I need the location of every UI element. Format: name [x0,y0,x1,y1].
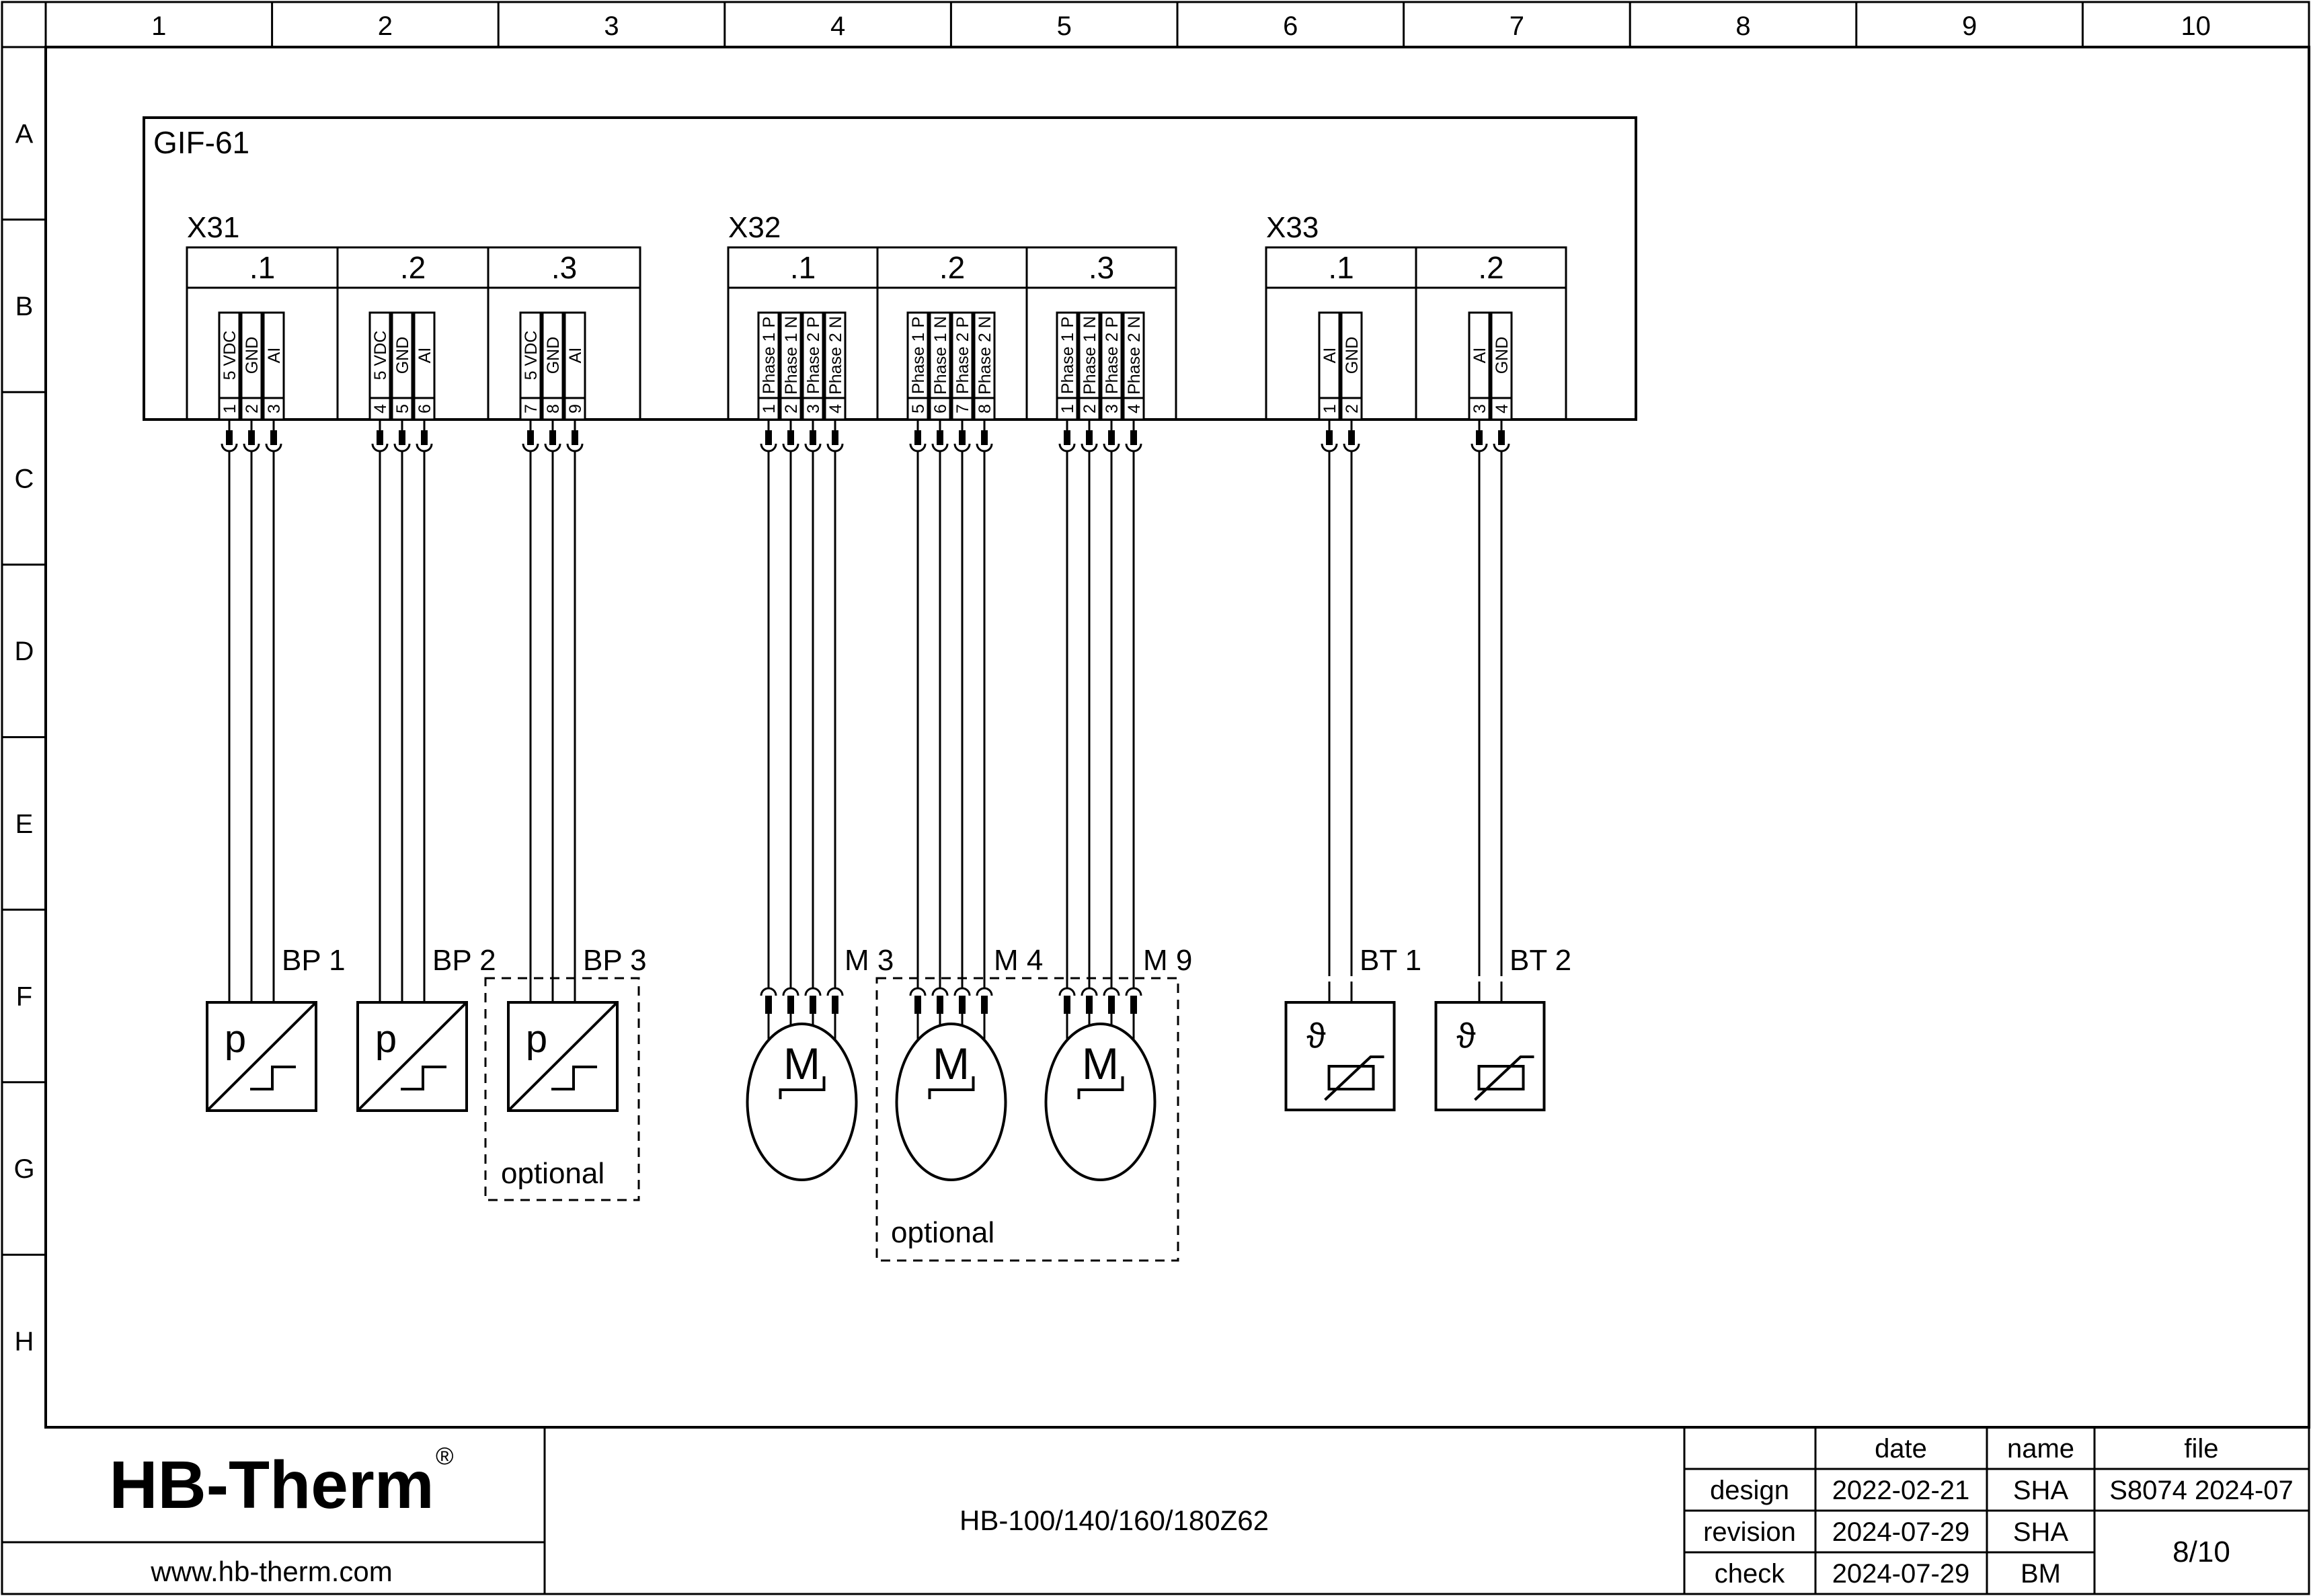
component-label: M 4 [994,944,1043,977]
plug-pin-icon [399,430,405,445]
motor-symbol: M [933,1039,970,1088]
plug-pin-icon [1498,430,1505,445]
company-website: www.hb-therm.com [150,1556,392,1587]
plug-pin-icon [959,430,966,445]
socket-cup-icon [806,988,820,996]
pin-number-label: 1 [1058,404,1077,413]
wiring-diagram: GIF-61 12345678910ABCDEFGHX31.15 VDC1GND… [0,0,2311,1596]
socket-cup-icon [1060,988,1074,996]
plug-pin-icon [1064,430,1070,445]
pin-signal-label: 5 VDC [221,331,239,381]
connector-label: X31 [187,211,239,244]
socket-cup-icon [1126,988,1141,996]
plug-pin-icon [981,430,988,445]
plug-pin-icon [765,430,772,445]
pin-signal-label: Phase 2 P [953,317,972,394]
col-header-file: file [2184,1434,2218,1464]
pin-signal-label: AI [416,348,434,364]
plug-pin-icon [810,430,816,445]
socket-cup-icon [783,988,798,996]
pin-signal-label: Phase 1 N [782,316,801,395]
schematic-page: GIF-61 12345678910ABCDEFGHX31.15 VDC1GND… [0,0,2311,1596]
plug-pin-icon [549,430,556,445]
pin-signal-label: Phase 2 P [804,317,823,394]
pin-number-label: 3 [804,404,823,413]
col-header-date: date [1875,1434,1927,1464]
company-logo: HB-Therm [109,1447,434,1523]
pin-signal-label: Phase 1 P [909,317,928,394]
device-box: GIF-61 [144,118,1636,420]
component-label: M 9 [1143,944,1192,977]
plug-pin-icon [914,430,921,445]
connector-cell-label: .2 [939,250,965,285]
revision-label: revision [1703,1517,1796,1547]
theta-symbol: ϑ [1306,1016,1326,1055]
pin-signal-label: AI [1321,348,1339,364]
pin-signal-label: Phase 1 P [1058,317,1077,394]
plug-pin-icon [248,430,255,445]
grid-column-label: 6 [1283,11,1298,41]
grid-row-label: E [15,809,34,839]
pin-number-label: 3 [265,404,284,413]
plug-pin-icon [1476,430,1483,445]
pin-number-label: 9 [566,404,585,413]
grid-column-label: 5 [1057,11,1072,41]
device-label: GIF-61 [153,125,249,160]
check-date: 2024-07-29 [1832,1559,1970,1589]
component-label: BT 1 [1360,944,1421,977]
plug-pin-icon [572,430,578,445]
generated-schematic: 12345678910ABCDEFGHX31.15 VDC1GND2AI3.25… [2,2,2309,1427]
pin-number-label: 4 [371,404,390,413]
pin-number-label: 4 [826,404,845,413]
col-header-name: name [2007,1434,2074,1464]
pin-signal-label: Phase 2 N [1125,316,1144,395]
pin-number-label: 6 [931,404,950,413]
pin-number-label: 4 [1125,404,1144,413]
plug-pin-icon [832,996,838,1014]
page-number: 8/10 [2172,1535,2230,1568]
grid-row-label: D [15,637,34,666]
socket-cup-icon [1104,988,1119,996]
pin-signal-label: GND [243,337,262,374]
connector-cell-label: .3 [1089,250,1114,285]
motor-symbol: M [1082,1039,1119,1088]
pressure-symbol: p [225,1017,246,1061]
plug-pin-icon [1348,430,1355,445]
plug-pin-icon [981,996,988,1014]
plug-pin-icon [937,996,943,1014]
pin-signal-label: GND [1493,337,1512,374]
pressure-symbol: p [375,1017,397,1061]
plug-pin-icon [527,430,534,445]
component-label: M 3 [845,944,894,977]
pin-number-label: 8 [544,404,563,413]
pin-signal-label: Phase 2 N [826,316,845,395]
connector-label: X33 [1266,211,1319,244]
design-name: SHA [2013,1476,2069,1505]
pin-number-label: 5 [909,404,928,413]
connector-label: X32 [728,211,781,244]
plug-pin-icon [914,996,921,1014]
plug-pin-icon [1064,996,1070,1014]
pin-signal-label: 5 VDC [522,331,541,381]
grid-row-label: C [15,465,34,494]
connector-cell-label: .3 [551,250,577,285]
grid-column-label: 10 [2181,11,2211,41]
pin-number-label: 4 [1493,404,1512,413]
pin-number-label: 7 [522,404,541,413]
motor-symbol: M [783,1039,820,1088]
plug-pin-icon [765,996,772,1014]
pin-number-label: 8 [976,404,994,413]
check-name: BM [2021,1559,2061,1589]
plug-pin-icon [787,430,794,445]
pin-signal-label: 5 VDC [371,331,390,381]
title-block: HB-Therm ® www.hb-therm.com HB-100/140/1… [2,1427,2309,1594]
grid-column-label: 2 [378,11,393,41]
pin-signal-label: AI [1471,348,1489,364]
pin-signal-label: Phase 1 N [931,316,950,395]
plug-pin-icon [421,430,428,445]
pin-signal-label: AI [265,348,284,364]
pin-number-label: 2 [1081,404,1099,413]
pin-number-label: 1 [1321,404,1339,413]
pin-signal-label: Phase 1 N [1081,316,1099,395]
revision-date: 2024-07-29 [1832,1517,1970,1547]
pin-signal-label: GND [1343,337,1362,374]
component-label: BP 1 [282,944,346,977]
design-date: 2022-02-21 [1832,1476,1970,1505]
plug-pin-icon [377,430,383,445]
pin-signal-label: AI [566,348,585,364]
grid-column-label: 3 [604,11,619,41]
pin-number-label: 3 [1103,404,1122,413]
registered-mark: ® [436,1442,454,1470]
plug-pin-icon [1130,996,1137,1014]
plug-pin-icon [1086,996,1093,1014]
optional-label: optional [501,1157,604,1190]
pin-number-label: 1 [760,404,779,413]
pin-signal-label: GND [544,337,563,374]
socket-cup-icon [933,988,947,996]
plug-pin-icon [1086,430,1093,445]
design-label: design [1710,1476,1789,1505]
grid-row-label: G [13,1154,34,1184]
plug-pin-icon [1108,430,1115,445]
pin-number-label: 3 [1471,404,1489,413]
plug-pin-icon [832,430,838,445]
pin-signal-label: Phase 1 P [760,317,779,394]
plug-pin-icon [787,996,794,1014]
plug-pin-icon [1326,430,1333,445]
plug-pin-icon [270,430,277,445]
connector-cell-label: .1 [790,250,816,285]
connector-cell-label: .1 [249,250,275,285]
grid-row-label: F [16,982,32,1011]
grid-column-label: 7 [1510,11,1524,41]
grid-column-label: 1 [151,11,166,41]
socket-cup-icon [955,988,970,996]
pin-number-label: 2 [782,404,801,413]
connector-cell-label: .2 [1478,250,1503,285]
sheet-frame [2,2,2309,1594]
plug-pin-icon [959,996,966,1014]
pin-number-label: 7 [953,404,972,413]
connector-cell-label: .1 [1328,250,1354,285]
connector-cell-label: .2 [400,250,426,285]
pin-number-label: 2 [243,404,262,413]
socket-cup-icon [910,988,925,996]
socket-cup-icon [1082,988,1097,996]
grid-row-label: H [15,1327,34,1357]
pin-number-label: 5 [393,404,412,413]
grid-row-label: A [15,119,34,149]
drawing-title: HB-100/140/160/180Z62 [959,1505,1269,1536]
pressure-symbol: p [526,1017,547,1061]
optional-label: optional [891,1216,994,1249]
socket-cup-icon [761,988,776,996]
component-label: BP 2 [432,944,496,977]
pin-number-label: 2 [1343,404,1362,413]
plug-pin-icon [1108,996,1115,1014]
pin-number-label: 6 [416,404,434,413]
plug-pin-icon [810,996,816,1014]
theta-symbol: ϑ [1456,1016,1476,1055]
component-label: BT 2 [1510,944,1571,977]
check-label: check [1715,1559,1785,1589]
plug-pin-icon [1130,430,1137,445]
socket-cup-icon [828,988,843,996]
revision-name: SHA [2013,1517,2069,1547]
pin-signal-label: GND [393,337,412,374]
pin-number-label: 1 [221,404,239,413]
grid-column-label: 8 [1735,11,1750,41]
socket-cup-icon [977,988,992,996]
pin-signal-label: Phase 2 N [976,316,994,395]
file-value: S8074 2024-07 [2109,1476,2294,1505]
component-label: BP 3 [583,944,647,977]
grid-column-label: 4 [830,11,845,41]
grid-row-label: B [15,292,34,321]
plug-pin-icon [937,430,943,445]
pin-signal-label: Phase 2 P [1103,317,1122,394]
grid-column-label: 9 [1962,11,1977,41]
plug-pin-icon [226,430,233,445]
